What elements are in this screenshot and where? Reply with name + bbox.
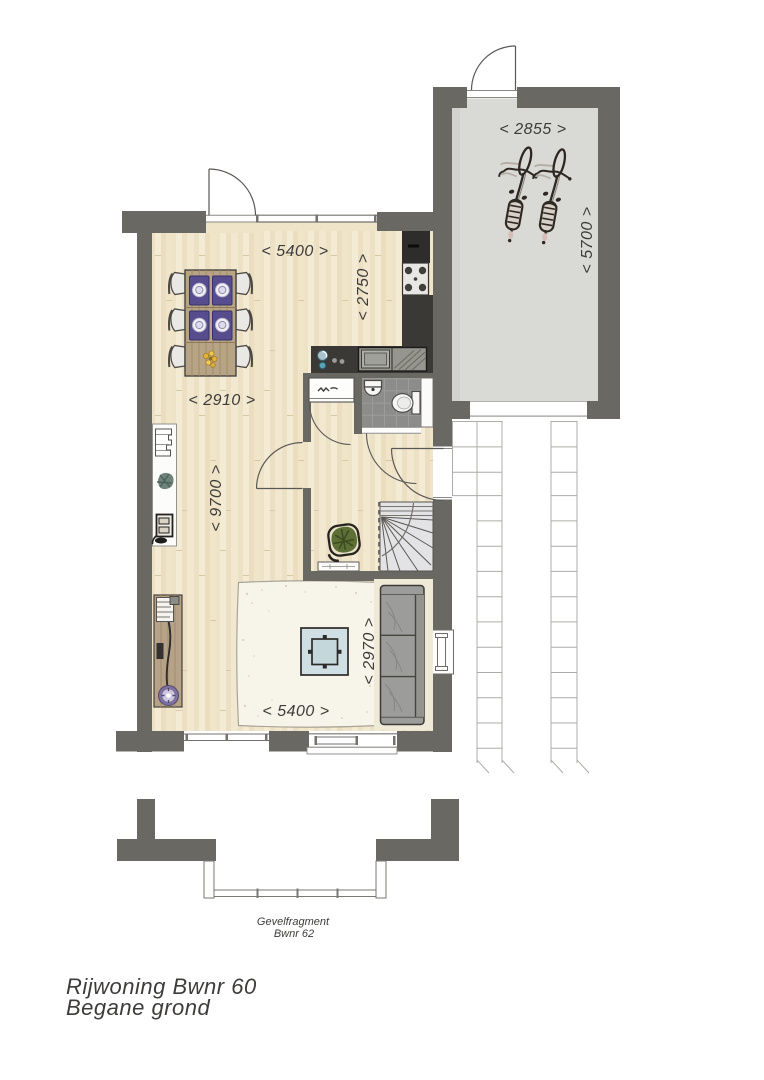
svg-text:< 2855 >: < 2855 > <box>499 121 566 138</box>
svg-text:< 5700 >: < 5700 > <box>579 206 596 273</box>
svg-text:< 5400 >: < 5400 > <box>262 703 329 720</box>
svg-text:< 2910 >: < 2910 > <box>188 392 255 409</box>
svg-text:< 2750 >: < 2750 > <box>355 253 372 320</box>
svg-text:< 9700 >: < 9700 > <box>208 464 225 531</box>
svg-text:Begane grond: Begane grond <box>66 995 210 1020</box>
svg-text:< 5400 >: < 5400 > <box>261 243 328 260</box>
svg-text:Bwnr 62: Bwnr 62 <box>274 928 314 940</box>
svg-text:< 2970 >: < 2970 > <box>361 617 378 684</box>
svg-text:Gevelfragment: Gevelfragment <box>257 916 330 928</box>
